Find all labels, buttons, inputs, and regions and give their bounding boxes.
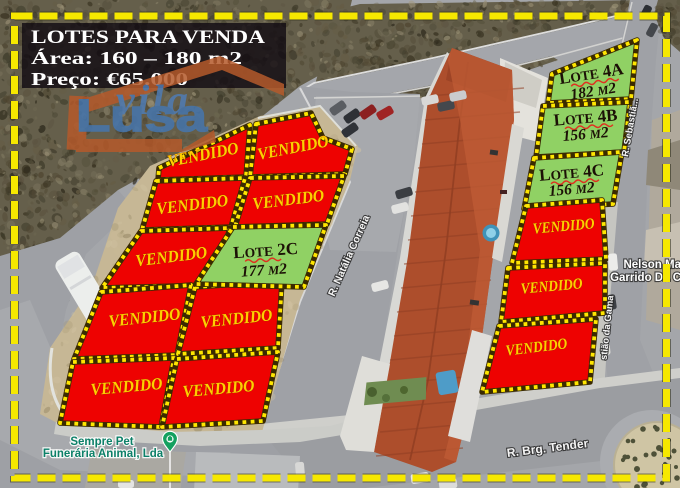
svg-text:Funerária Animal, Lda: Funerária Animal, Lda	[43, 448, 164, 460]
svg-text:Nelson Ma: Nelson Ma	[623, 259, 680, 271]
svg-text:Sempre Pet: Sempre Pet	[70, 436, 133, 448]
svg-text:Lusa: Lusa	[76, 90, 208, 141]
svg-text:LOTES PARA VENDA: LOTES PARA VENDA	[31, 27, 265, 48]
svg-text:177 M2: 177 M2	[240, 260, 287, 280]
